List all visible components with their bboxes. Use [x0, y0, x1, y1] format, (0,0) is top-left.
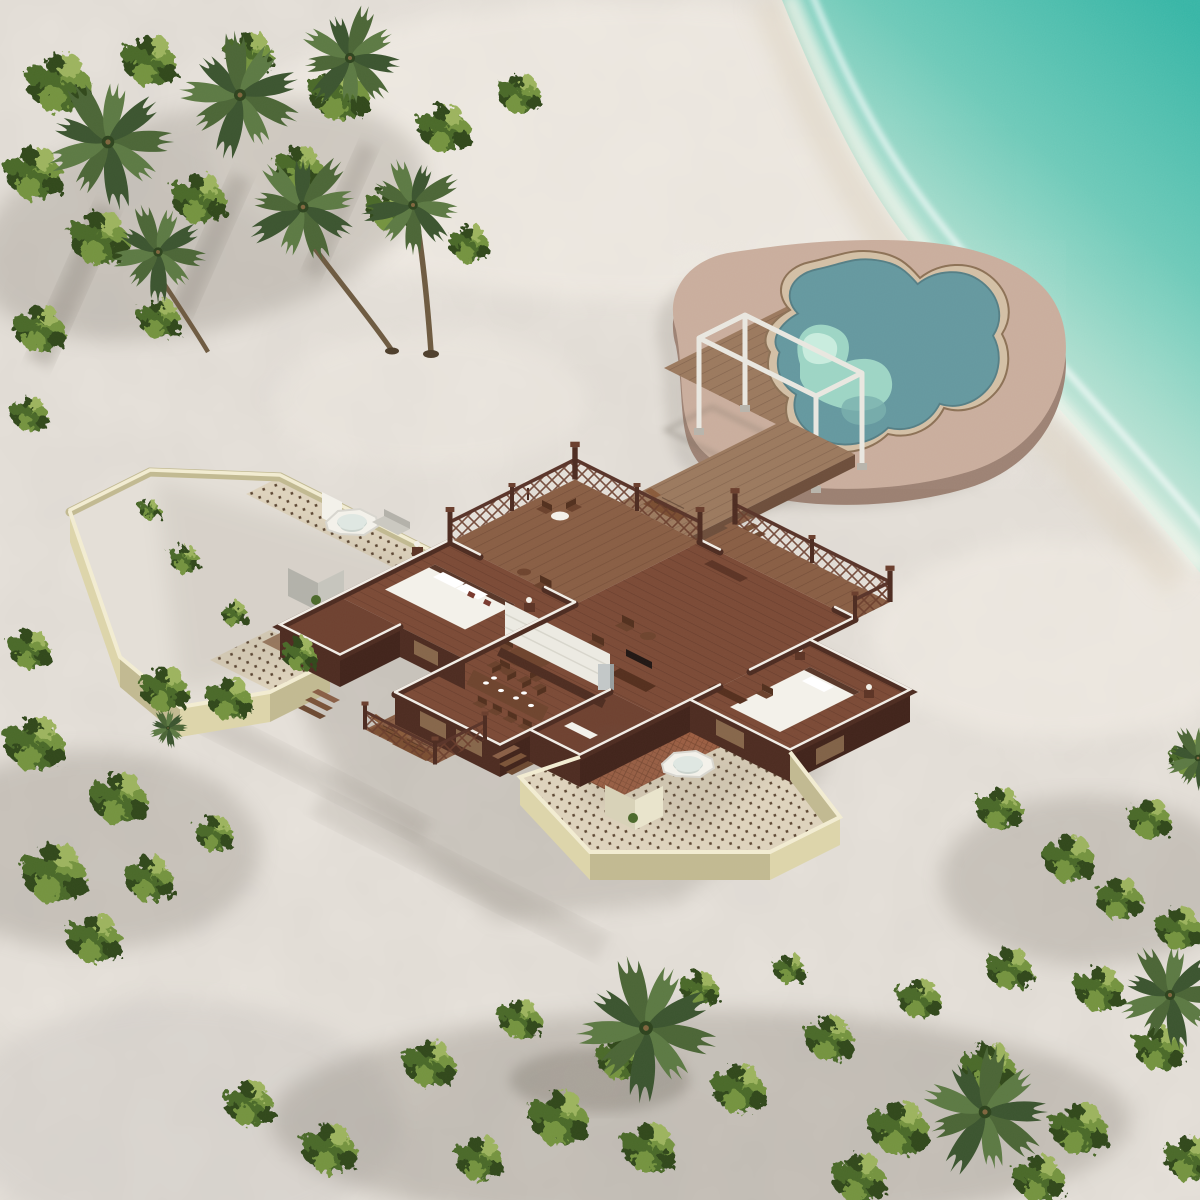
aerial-villa-render — [0, 0, 1200, 1200]
film-grain-overlay — [0, 0, 1200, 1200]
scene-canvas — [0, 0, 1200, 1200]
